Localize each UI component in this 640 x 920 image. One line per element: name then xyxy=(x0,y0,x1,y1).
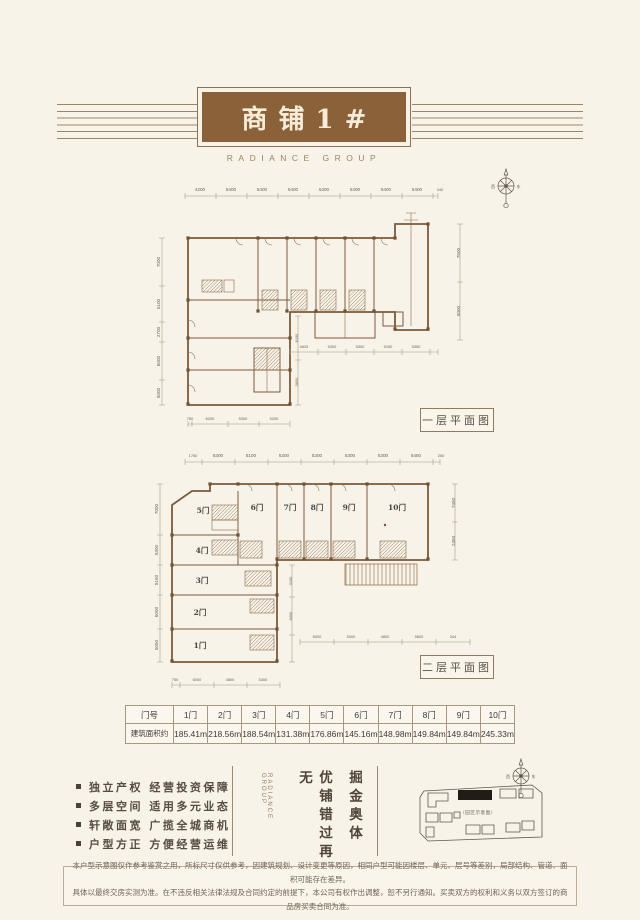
dim-label: 7000 xyxy=(154,503,159,514)
brand-name: RADIANCE GROUP xyxy=(197,153,411,163)
plan2-right-dimensions: 7450 2450 xyxy=(451,484,458,560)
area-cell: 145.16m² xyxy=(344,724,378,744)
dim-label: 750 xyxy=(172,677,179,682)
table-header-cell: 3门 xyxy=(242,706,276,724)
compass-west-label: 西 xyxy=(506,774,510,779)
bullet-square-icon xyxy=(76,822,81,827)
feature-item: 多层空间 适用多元业态 xyxy=(76,796,230,815)
dim-label: 5850 xyxy=(294,377,299,386)
dim-label: 6150 xyxy=(294,333,299,342)
dim-label: 250 xyxy=(438,453,445,458)
disclaimer-line-2: 具体以最终交房实测为准。在不违反相关法律法规及合同约定的前提下，本公司有权作出调… xyxy=(72,886,568,913)
dim-label: 5300 xyxy=(345,453,356,458)
feature-text: 轩敞面宽 广揽全城商机 xyxy=(89,817,230,833)
area-cell: 245.33m² xyxy=(480,724,514,744)
dim-label: 5200 xyxy=(270,416,279,421)
dim-label: 6000 xyxy=(154,606,159,617)
dim-label: 5100 xyxy=(156,298,161,309)
slogan-block: 优铺错过再无 掘金奥体 xyxy=(294,770,364,864)
vertical-divider xyxy=(377,766,378,856)
dim-label: 5600 xyxy=(415,634,424,639)
area-cell: 148.98m² xyxy=(378,724,412,744)
dim-label: 5150 xyxy=(154,574,159,585)
dim-label: 5050 xyxy=(154,639,159,650)
dim-label: 5400 xyxy=(381,187,392,192)
dim-label: 6000 xyxy=(193,677,202,682)
dim-label: 5450 xyxy=(411,453,422,458)
table-header-cell: 2门 xyxy=(208,706,242,724)
plan2-top-dimensions: 1750 5300 5100 5300 5300 5300 5300 5450 … xyxy=(185,453,445,465)
area-cell: 176.86m² xyxy=(310,724,344,744)
disclaimer-line-1: 本户型示意图仅作参考鉴赏之用，所标尺寸仅供参考，因建筑规划、设计变更等原因，相同… xyxy=(72,859,568,886)
plan1-building xyxy=(186,213,429,406)
plan1-inner-dimensions: 6150 5850 xyxy=(294,316,301,405)
table-header-cell: 7门 xyxy=(378,706,412,724)
table-header-cell: 门号 xyxy=(126,706,174,724)
compass-east-label: 东 xyxy=(532,773,536,779)
first-floor-plan-label: 一层平面图 xyxy=(420,408,494,432)
unit-label-2: 2门 xyxy=(194,607,207,617)
area-cell: 149.84m² xyxy=(446,724,480,744)
disclaimer-box: 本户型示意图仅作参考鉴赏之用，所标尺寸仅供参考，因建筑规划、设计变更等原因，相同… xyxy=(63,866,577,906)
table-header-row: 门号 1门 2门 3门 4门 5门 6门 7门 8门 9门 10门 xyxy=(126,706,515,724)
unit-label-9: 9门 xyxy=(343,502,356,512)
dim-label: 5400 xyxy=(257,187,268,192)
table-header-cell: 10门 xyxy=(480,706,514,724)
dim-label: 5350 xyxy=(412,344,421,349)
table-header-cell: 5门 xyxy=(310,706,344,724)
unit-label-7: 7门 xyxy=(284,502,297,512)
dim-label: 6200 xyxy=(206,416,215,421)
table-header-cell: 8门 xyxy=(412,706,446,724)
dim-label: 7000 xyxy=(156,256,161,267)
unit-label-3: 3门 xyxy=(196,575,209,585)
compass-icon: 西 东 xyxy=(504,756,538,802)
feature-text: 独立产权 经营投资保障 xyxy=(89,779,230,795)
dim-label: 2700 xyxy=(156,326,161,337)
dim-label: 4625 xyxy=(300,344,309,349)
second-floor-plan-label: 二层平面图 xyxy=(420,655,494,679)
dim-label: 4800 xyxy=(381,634,390,639)
table-header-cell: 1门 xyxy=(174,706,208,724)
feature-text: 户型方正 方便经营运维 xyxy=(89,836,230,852)
dim-label: 6000 xyxy=(288,611,293,620)
plan2-building: 5门 6门 7门 8门 9门 10门 4门 3门 2门 1门 xyxy=(170,482,429,662)
dim-label: 5150 xyxy=(384,344,393,349)
unit-label-1: 1门 xyxy=(194,640,207,650)
brand-vertical-text: RADIANCE GROUP xyxy=(260,773,272,855)
area-cell: 185.41m² xyxy=(174,724,208,744)
dim-label: 1750 xyxy=(189,453,198,458)
dim-label: 5100 xyxy=(246,453,257,458)
compass-east-label: 东 xyxy=(517,183,521,189)
plan2-left-dimensions: 7000 5300 5150 6000 5050 xyxy=(154,484,163,662)
dim-label: 5400 xyxy=(350,187,361,192)
unit-label-4: 4门 xyxy=(196,545,209,555)
dim-label: 5300 xyxy=(279,453,290,458)
feature-item: 轩敞面宽 广揽全城商机 xyxy=(76,815,230,834)
dim-label: 7500 xyxy=(456,247,461,258)
dim-label: 5300 xyxy=(378,453,389,458)
table-area-row: 建筑面积约 185.41m² 218.56m² 188.54m² 131.38m… xyxy=(126,724,515,744)
header-rule-lines-right xyxy=(412,104,583,139)
unit-label-8: 8门 xyxy=(311,502,324,512)
table-header-cell: 9门 xyxy=(446,706,480,724)
dim-label: 5400 xyxy=(226,187,237,192)
table-header-cell: 4门 xyxy=(276,706,310,724)
area-cell: 131.38m² xyxy=(276,724,310,744)
area-cell: 149.84m² xyxy=(412,724,446,744)
dim-label: 4200 xyxy=(195,187,206,192)
first-floor-plan: 4200 5400 5400 5400 5400 5400 5400 5400 … xyxy=(140,180,500,442)
bullet-square-icon xyxy=(76,841,81,846)
title-frame: 商铺1# xyxy=(197,87,411,147)
feature-item: 独立产权 经营投资保障 xyxy=(76,777,230,796)
dim-label: 5400 xyxy=(412,187,423,192)
plan1-middle-dimensions: 4625 5300 5300 5150 5350 xyxy=(290,344,438,355)
dim-label: 2450 xyxy=(451,535,456,546)
header-rule-lines-left xyxy=(57,104,197,139)
dim-label: 5300 xyxy=(312,453,323,458)
plan1-right-dimensions: 7500 5000 xyxy=(456,224,463,340)
unit-label-6: 6门 xyxy=(251,502,264,512)
unit-label-5: 5门 xyxy=(197,505,210,515)
bullet-square-icon xyxy=(76,803,81,808)
dim-label: 240 xyxy=(437,187,444,192)
dim-label: 5300 xyxy=(259,677,268,682)
plan1-top-dimensions: 4200 5400 5400 5400 5400 5400 5400 5400 … xyxy=(185,187,444,199)
slogan-right-column: 掘金奥体 xyxy=(344,770,364,864)
plan1-bottom-dimensions: 750 6200 5300 5200 xyxy=(187,416,290,427)
feature-list: 独立产权 经营投资保障 多层空间 适用多元业态 轩敞面宽 广揽全城商机 户型方正… xyxy=(76,777,230,853)
dim-label: 750 xyxy=(187,416,194,421)
dim-label: 7450 xyxy=(451,497,456,508)
plan2-middle-dimensions: 5000 5000 4800 5600 344 xyxy=(300,634,470,645)
plan2-inner-dimensions: 3150 6000 xyxy=(288,565,295,662)
dim-label: 5000 xyxy=(313,634,322,639)
dim-label: 5000 xyxy=(456,305,461,316)
dim-label: 5300 xyxy=(356,344,365,349)
highlighted-building xyxy=(458,790,492,800)
table-header-cell: 6门 xyxy=(344,706,378,724)
area-cell: 218.56m² xyxy=(208,724,242,744)
vertical-divider xyxy=(232,766,233,856)
brochure-page: 商铺1# RADIANCE GROUP 西 东 4200 5400 5400 xyxy=(0,0,640,920)
bullet-square-icon xyxy=(76,784,81,789)
dim-label: 5000 xyxy=(156,387,161,398)
plan2-bottom-dimensions: 750 6000 4800 5300 xyxy=(172,677,280,688)
dim-label: 6000 xyxy=(156,355,161,366)
plan1-columns xyxy=(186,222,429,405)
dim-label: 5300 xyxy=(213,453,224,458)
unit-label-10: 10门 xyxy=(388,502,406,512)
dim-label: 344 xyxy=(450,634,457,639)
site-map-caption: （园区示意图） xyxy=(460,809,496,816)
dim-label: 5300 xyxy=(239,416,248,421)
dim-label: 5300 xyxy=(328,344,337,349)
dim-label: 5400 xyxy=(319,187,330,192)
area-cell: 188.54m² xyxy=(242,724,276,744)
dim-label: 4800 xyxy=(226,677,235,682)
dim-label: 5000 xyxy=(347,634,356,639)
plan1-left-dimensions: 7000 5100 2700 6000 5000 xyxy=(156,238,165,405)
dim-label: 3150 xyxy=(288,576,293,585)
feature-text: 多层空间 适用多元业态 xyxy=(89,798,230,814)
dim-label: 5400 xyxy=(288,187,299,192)
page-title: 商铺1# xyxy=(202,92,406,142)
slogan-left-column: 优铺错过再无 xyxy=(294,770,334,864)
feature-item: 户型方正 方便经营运维 xyxy=(76,834,230,853)
dim-label: 5300 xyxy=(154,544,159,555)
table-row-label: 建筑面积约 xyxy=(126,724,174,744)
unit-area-table: 门号 1门 2门 3门 4门 5门 6门 7门 8门 9门 10门 建筑面积约 … xyxy=(125,705,515,744)
